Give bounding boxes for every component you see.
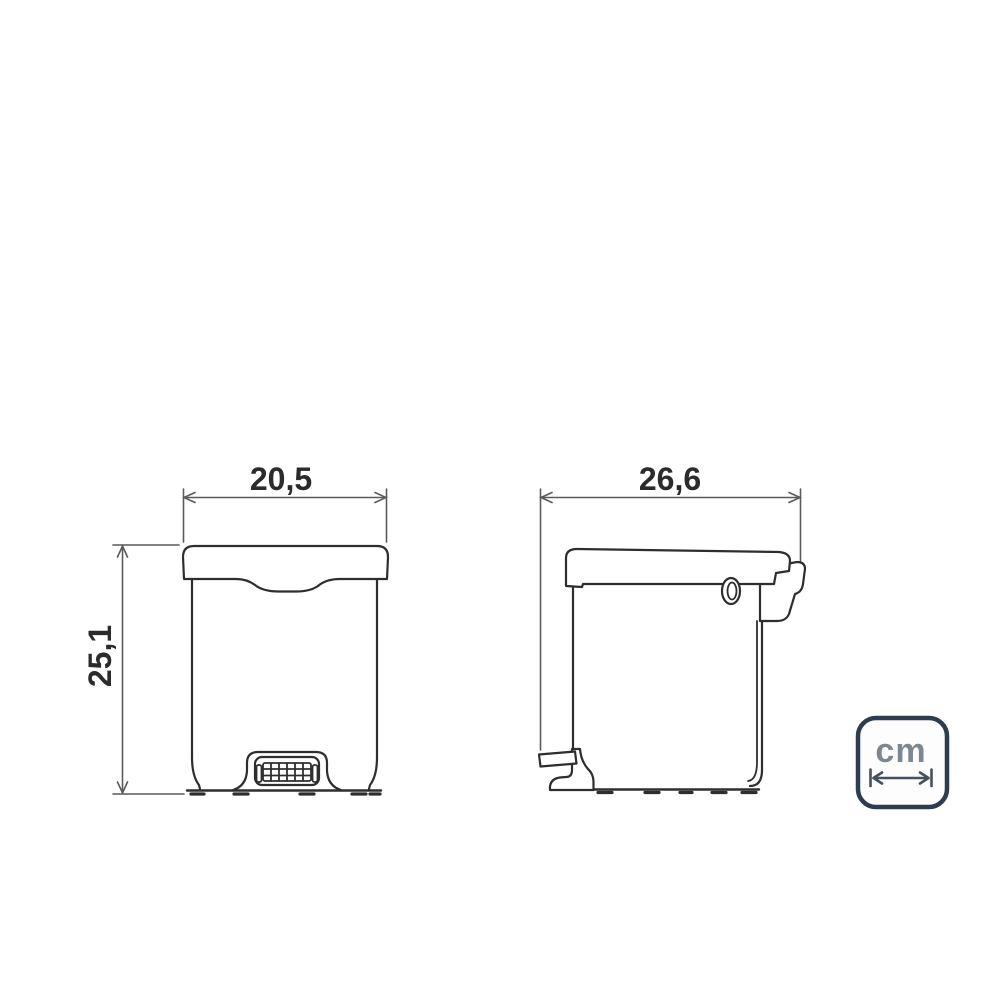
bin-side-lid [566,549,790,587]
unit-badge: cm [858,718,947,807]
drawing-canvas: 20,5 25,1 [0,0,1000,1000]
front-width-label: 20,5 [250,461,312,497]
bin-side-pedal-lever [539,752,577,767]
bin-side-back-wall-inner [748,621,757,781]
front-view-drawing [183,546,388,794]
side-width-label: 26,6 [639,461,701,497]
technical-drawing: 20,5 25,1 [0,0,1000,1000]
bin-front-pedal-grid [264,764,312,782]
unit-label: cm [875,732,926,770]
front-height-dimension [113,545,184,794]
bin-side-back-wall-outer [750,621,762,786]
bin-front-lid [183,546,388,592]
front-height-label: 25,1 [82,625,118,687]
side-view-drawing [539,549,805,793]
bin-front-body-left [192,580,200,789]
bin-front-body-right [369,580,377,789]
